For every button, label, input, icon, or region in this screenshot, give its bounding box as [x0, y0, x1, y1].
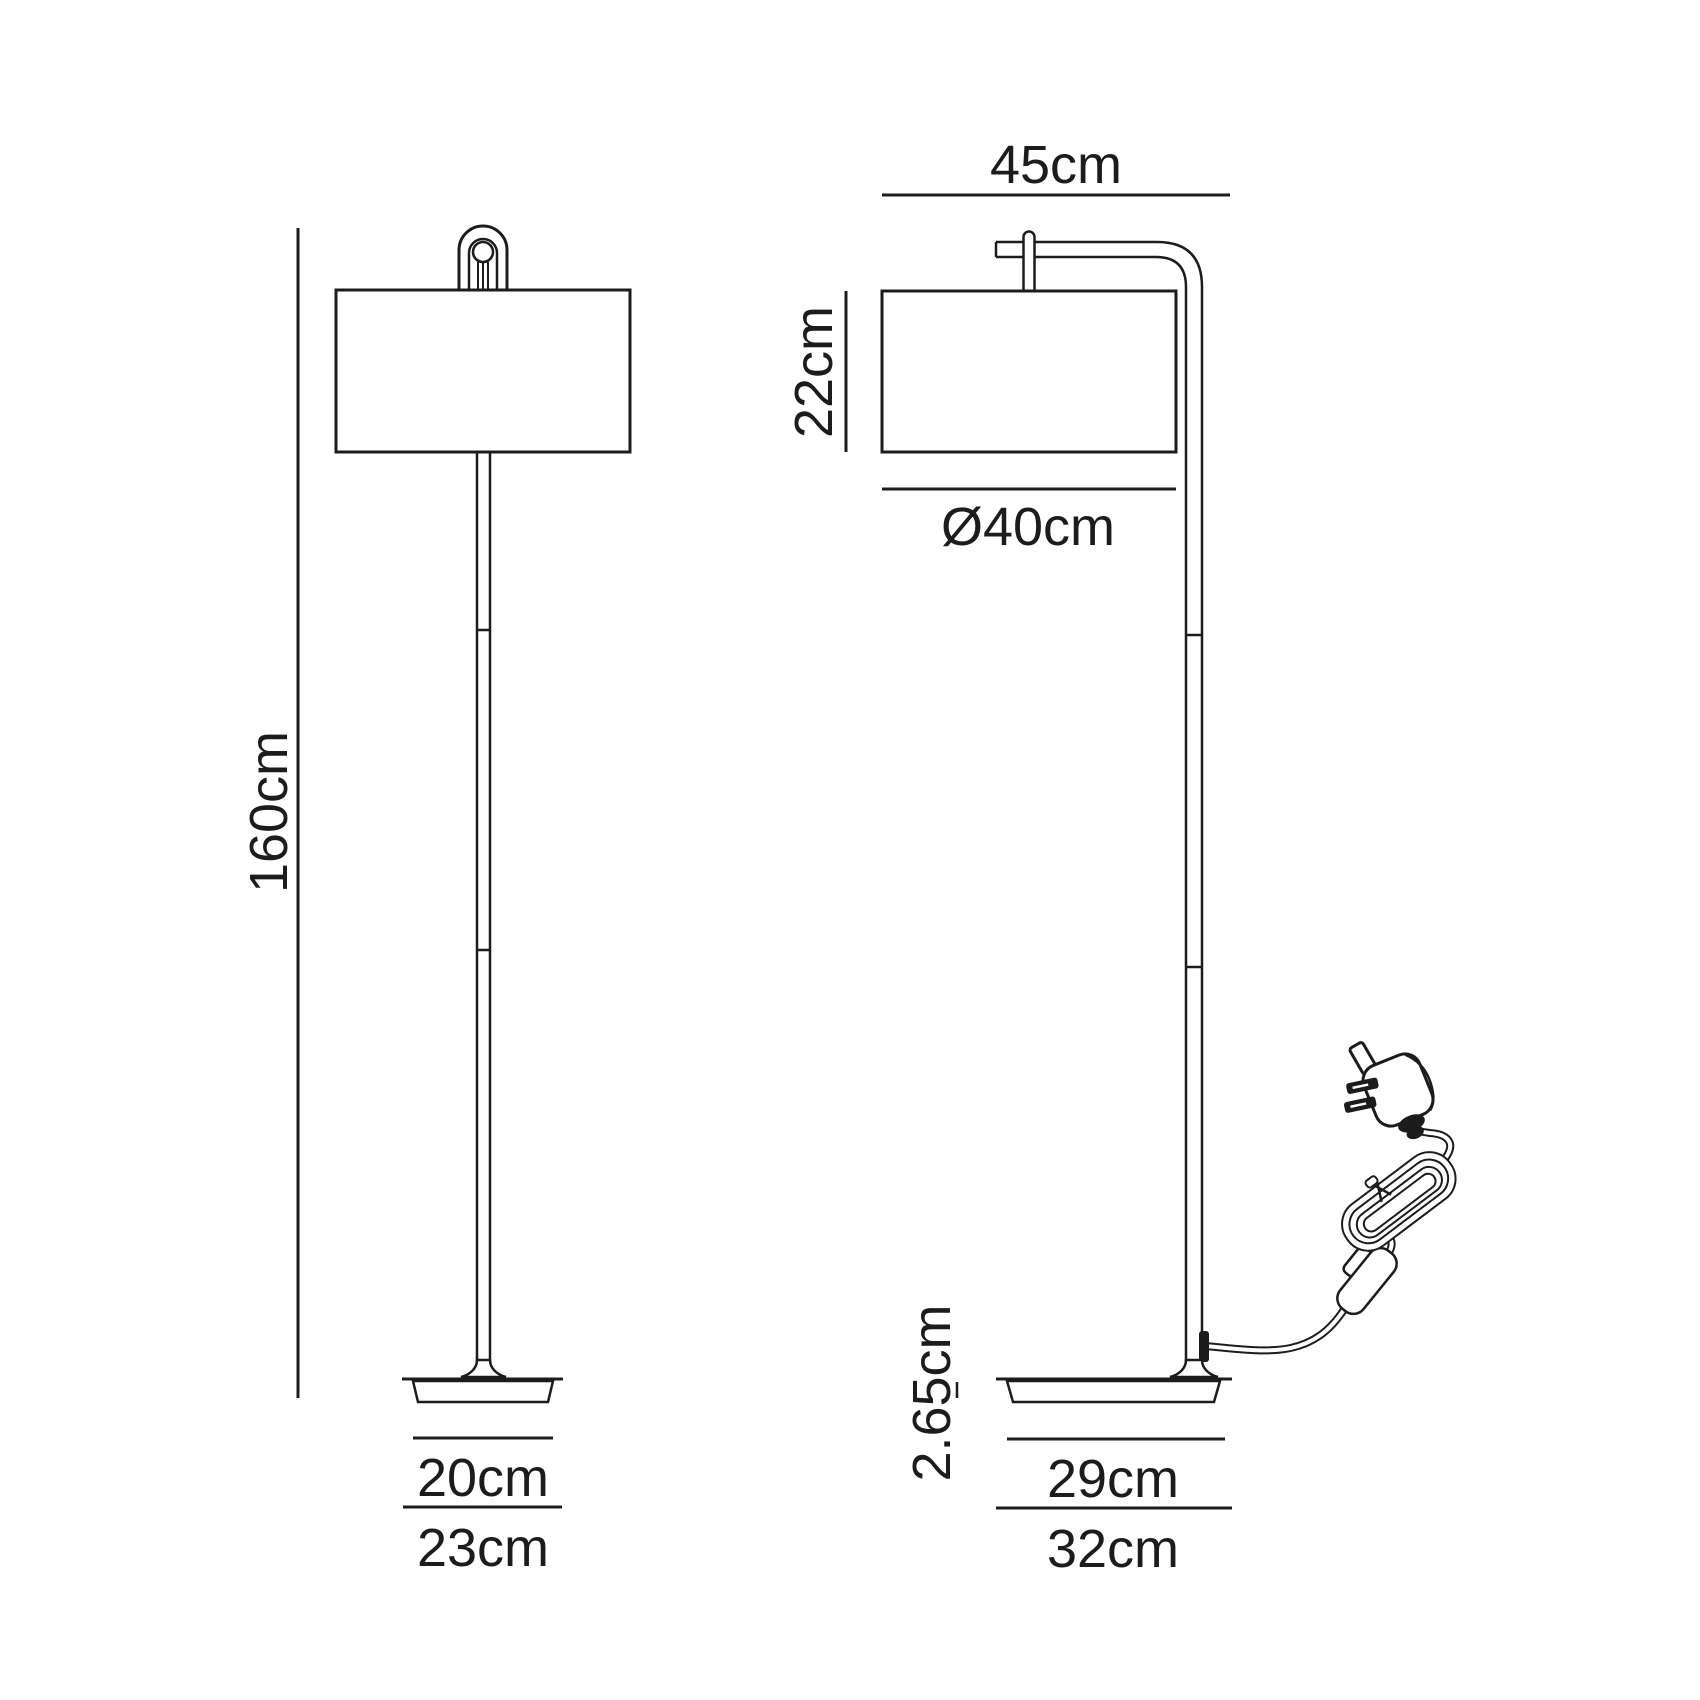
side-shade-height-dimension-label: 22cm: [784, 306, 844, 438]
power-cord-lower-outline: [1206, 1308, 1345, 1350]
front-base-bottom-dimension-label: 23cm: [417, 1518, 549, 1578]
front-view: 160cm 20cm 23cm: [239, 226, 630, 1578]
side-base-thickness-label: 2.65cm: [902, 1304, 962, 1481]
side-base-top-dimension-label: 29cm: [1047, 1449, 1179, 1509]
lamp-dimension-diagram: 160cm 20cm 23cm 45cm: [0, 0, 1700, 1700]
side-lamp-shade: [882, 291, 1176, 452]
front-lamp-shade: [336, 290, 630, 452]
side-view: 45cm 22cm Ø40cm: [784, 135, 1466, 1579]
side-shade-hanger-rod: [1024, 232, 1035, 291]
front-height-dimension-label: 160cm: [239, 731, 299, 893]
finial-ball: [473, 242, 493, 262]
front-pole-foot: [461, 1360, 506, 1377]
side-base-bottom-dimension-label: 32cm: [1047, 1519, 1179, 1579]
diagram-canvas: 160cm 20cm 23cm 45cm: [0, 0, 1700, 1700]
front-base-top-dimension-label: 20cm: [417, 1448, 549, 1508]
side-depth-dimension-label: 45cm: [990, 135, 1122, 195]
side-shade-diameter-dimension-label: Ø40cm: [941, 497, 1115, 557]
cable-coil-loop-outer: [1332, 1142, 1466, 1261]
side-base-body: [1007, 1381, 1220, 1402]
uk-plug: [1323, 1023, 1448, 1159]
cord-exit-connector: [1199, 1331, 1209, 1362]
side-pole-foot: [1170, 1360, 1218, 1377]
front-base-body: [413, 1381, 553, 1402]
